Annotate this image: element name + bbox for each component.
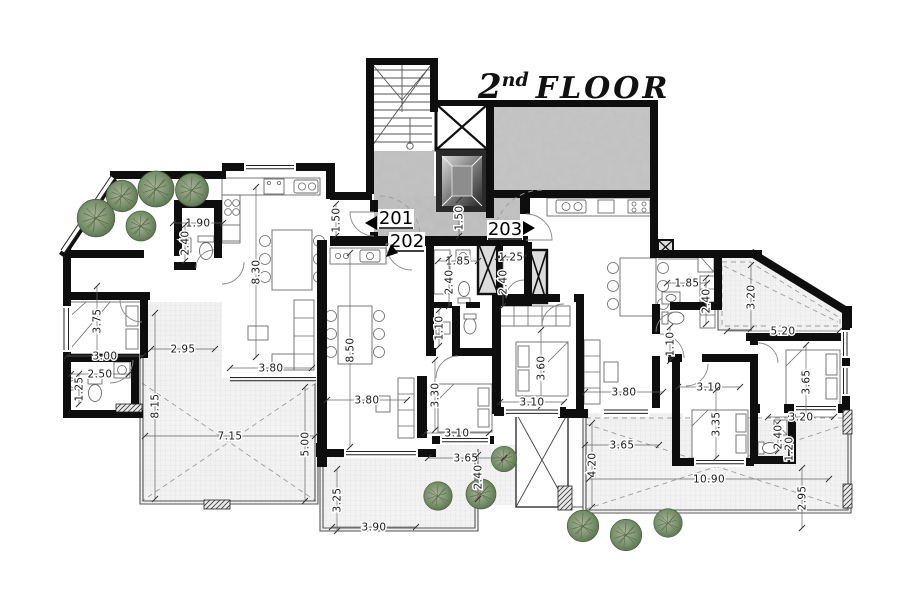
window bbox=[61, 306, 72, 352]
staircase bbox=[372, 63, 432, 151]
dimension-label: 3.80 bbox=[612, 387, 637, 399]
dimension-label: 1.10 bbox=[434, 316, 446, 341]
plant-icon bbox=[424, 482, 453, 511]
title-ordinal: nd bbox=[502, 69, 529, 91]
elevator bbox=[436, 150, 488, 212]
kitchen-203 bbox=[547, 198, 653, 216]
dimension-label: 3.20 bbox=[746, 285, 758, 310]
dimension-label: 2.40 bbox=[180, 231, 192, 256]
dimension: 1.10 bbox=[434, 307, 446, 349]
sofa-202 bbox=[376, 378, 414, 438]
dimension: 1.20 bbox=[784, 435, 796, 463]
window bbox=[841, 330, 851, 358]
dimension: 3.10 bbox=[675, 382, 743, 394]
dimension-label: 3.65 bbox=[610, 440, 635, 452]
entrance-arrow-icon bbox=[365, 216, 377, 230]
dimension-label: 3.65 bbox=[801, 370, 813, 395]
dimension-label: 2.95 bbox=[171, 344, 196, 356]
unit-number: 201 bbox=[379, 208, 413, 229]
dimension-label: 3.10 bbox=[520, 397, 545, 409]
wardrobe-203 bbox=[500, 306, 570, 326]
dimension-label: 8.50 bbox=[345, 338, 357, 363]
unit-number: 202 bbox=[390, 231, 424, 252]
dimension: 1.50 bbox=[331, 201, 343, 239]
floor-plan-canvas: 1.902.408.303.753.002.952.501.258.157.15… bbox=[0, 0, 900, 599]
window bbox=[244, 162, 296, 172]
dimension-label: 3.90 bbox=[362, 522, 387, 534]
dining-table-201 bbox=[260, 230, 325, 290]
dimension-label: 3.20 bbox=[789, 412, 814, 424]
dimension-label: 3.10 bbox=[697, 382, 722, 394]
dimension-label: 3.30 bbox=[430, 383, 442, 408]
unit-number: 203 bbox=[488, 219, 522, 240]
window bbox=[841, 366, 851, 396]
title-word: FLOOR bbox=[535, 71, 671, 106]
dimension-label: 2.40 bbox=[473, 465, 485, 490]
dimension-label: 3.60 bbox=[536, 356, 548, 381]
dimension-label: 1.50 bbox=[331, 208, 343, 233]
tree-icon bbox=[106, 180, 138, 212]
dimension-label: 3.10 bbox=[445, 428, 470, 440]
dimension: 8.50 bbox=[345, 250, 357, 450]
plant-icon bbox=[610, 519, 642, 551]
dimension-label: 2.40 bbox=[701, 289, 713, 314]
plant-icon bbox=[491, 446, 517, 472]
dimension-label: 7.15 bbox=[218, 431, 243, 443]
bed-203-c bbox=[786, 350, 840, 408]
dimension-label: 2.50 bbox=[88, 369, 113, 381]
dimension-label: 3.25 bbox=[332, 488, 344, 513]
sofa-201 bbox=[248, 300, 314, 370]
tree-icon bbox=[176, 174, 209, 207]
dimension-label: 3.80 bbox=[259, 363, 284, 375]
kitchen-202 bbox=[330, 248, 386, 264]
dimension-label: 3.35 bbox=[711, 412, 723, 437]
dimension-label: 3.80 bbox=[355, 395, 380, 407]
dimension-label: 1.20 bbox=[784, 437, 796, 462]
bed-202 bbox=[438, 384, 492, 432]
dimension-label: 1.90 bbox=[186, 218, 211, 230]
dimension-label: 1.25 bbox=[74, 377, 86, 402]
dimension-label: 8.15 bbox=[150, 394, 162, 419]
tree-icon bbox=[126, 211, 156, 241]
window bbox=[602, 406, 650, 417]
floor-plan-page: 1.902.408.303.753.002.952.501.258.157.15… bbox=[0, 0, 900, 599]
unit-label-202: 202 bbox=[386, 231, 425, 257]
plant-icon bbox=[654, 509, 683, 538]
dimension-label: 4.20 bbox=[587, 453, 599, 478]
dimension-label: 1.50 bbox=[454, 206, 466, 231]
dimension: 1.25 bbox=[495, 252, 527, 264]
window bbox=[694, 457, 746, 467]
title-number: 2 bbox=[477, 67, 502, 107]
dimension-label: 5.20 bbox=[771, 326, 796, 338]
window bbox=[344, 448, 418, 458]
dimension: 3.80 bbox=[324, 395, 410, 407]
dimension-label: 2.95 bbox=[797, 486, 809, 511]
dimension-label: 1.85 bbox=[675, 278, 700, 290]
plant-icon bbox=[567, 510, 599, 542]
dimension-label: 2.40 bbox=[444, 270, 456, 295]
dimension-label: 3.65 bbox=[454, 453, 479, 465]
entrance-arrow-icon bbox=[523, 221, 535, 235]
dimension-label: 8.30 bbox=[251, 260, 263, 285]
dimension-label: 1.25 bbox=[499, 252, 524, 264]
dimension-label: 10.90 bbox=[693, 474, 725, 486]
dimension-label: 1.10 bbox=[665, 332, 677, 357]
dimension: 1.25 bbox=[74, 371, 86, 407]
dimension-label: 3.75 bbox=[92, 309, 104, 334]
dimension-label: 3.00 bbox=[93, 351, 118, 363]
dimension-label: 5.00 bbox=[300, 432, 312, 457]
tree-icon bbox=[138, 171, 174, 207]
bed-201 bbox=[66, 302, 142, 354]
dimension-label: 2.40 bbox=[498, 270, 510, 295]
